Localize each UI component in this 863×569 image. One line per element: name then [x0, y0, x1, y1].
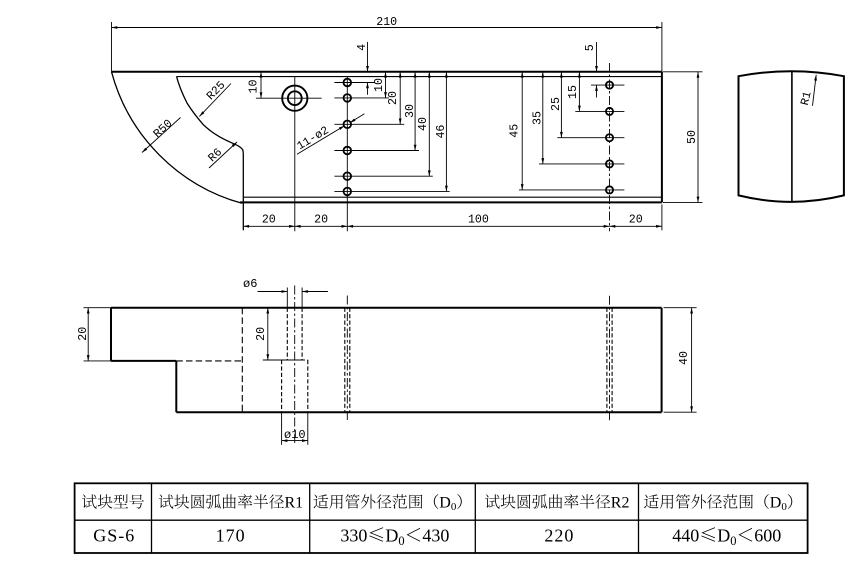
svg-text:35: 35	[531, 111, 544, 125]
svg-text:ø6: ø6	[243, 277, 257, 291]
svg-text:D: D	[717, 525, 730, 545]
svg-text:20: 20	[77, 327, 90, 341]
svg-text:220: 220	[544, 525, 574, 545]
svg-text:10: 10	[248, 80, 261, 94]
svg-text:100: 100	[468, 213, 489, 226]
svg-text:0: 0	[398, 534, 404, 548]
svg-text:600: 600	[754, 525, 781, 545]
svg-text:46: 46	[435, 125, 448, 139]
svg-text:GS-6: GS-6	[93, 525, 135, 545]
svg-text:20: 20	[255, 327, 268, 341]
svg-text:40: 40	[417, 117, 430, 131]
svg-text:ø10: ø10	[284, 428, 306, 442]
svg-text:330: 330	[340, 525, 367, 545]
svg-text:5: 5	[584, 44, 597, 51]
svg-text:20: 20	[629, 213, 643, 226]
svg-text:4: 4	[356, 44, 369, 51]
svg-text:40: 40	[678, 351, 691, 365]
svg-text:170: 170	[216, 525, 246, 545]
svg-text:210: 210	[376, 16, 397, 29]
svg-text:45: 45	[509, 124, 522, 138]
svg-text:430: 430	[422, 525, 449, 545]
svg-text:25: 25	[550, 97, 563, 111]
svg-text:20: 20	[262, 213, 276, 226]
svg-text:20: 20	[314, 213, 328, 226]
svg-text:10: 10	[373, 78, 386, 92]
svg-text:15: 15	[567, 85, 580, 99]
svg-text:440: 440	[672, 525, 699, 545]
svg-text:20: 20	[387, 91, 400, 105]
svg-text:R1: R1	[285, 495, 304, 512]
svg-text:30: 30	[404, 104, 417, 118]
svg-text:D: D	[385, 525, 398, 545]
svg-text:50: 50	[686, 130, 699, 144]
svg-text:0: 0	[730, 534, 736, 548]
svg-text:R2: R2	[611, 495, 630, 512]
